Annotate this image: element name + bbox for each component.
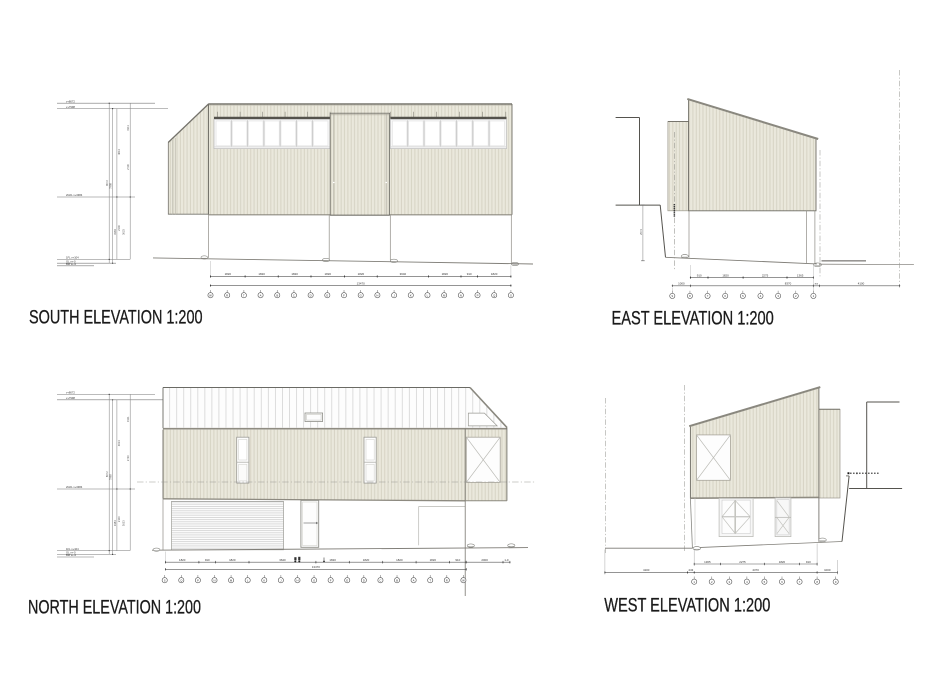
svg-text:WEST ELEVATION 1:200: WEST ELEVATION 1:200 xyxy=(604,596,770,617)
svg-text:1911: 1911 xyxy=(126,125,130,131)
svg-text:2GFL v+3384: 2GFL v+3384 xyxy=(66,193,83,197)
svg-text:3384: 3384 xyxy=(113,520,117,526)
svg-text:R: R xyxy=(446,578,448,582)
svg-text:W: W xyxy=(209,293,212,297)
svg-text:1FL v+104: 1FL v+104 xyxy=(66,547,79,551)
svg-text:3023: 3023 xyxy=(121,229,125,235)
svg-text:1-0: 1-0 xyxy=(504,558,509,562)
svg-text:H: H xyxy=(296,578,298,582)
svg-text:3640: 3640 xyxy=(279,558,286,562)
svg-text:1911: 1911 xyxy=(126,416,130,422)
svg-text:3640: 3640 xyxy=(400,272,407,276)
svg-text:13470: 13470 xyxy=(312,565,320,569)
svg-text:BM v+-0: BM v+-0 xyxy=(66,553,77,557)
svg-text:E: E xyxy=(346,578,348,582)
svg-text:4100: 4100 xyxy=(643,568,650,572)
svg-text:1820: 1820 xyxy=(363,558,370,562)
svg-text:2000: 2000 xyxy=(481,558,488,562)
svg-text:2730: 2730 xyxy=(126,455,130,461)
svg-text:2730: 2730 xyxy=(126,164,130,170)
svg-text:2574: 2574 xyxy=(639,229,643,235)
svg-text:13470: 13470 xyxy=(357,281,365,285)
svg-text:C: C xyxy=(293,293,295,297)
svg-text:8370: 8370 xyxy=(785,282,792,286)
svg-text:1820: 1820 xyxy=(258,272,265,276)
svg-text:910: 910 xyxy=(697,273,702,277)
svg-text:4614: 4614 xyxy=(117,149,121,155)
svg-text:910: 910 xyxy=(455,558,460,562)
svg-text:1820: 1820 xyxy=(325,272,332,276)
svg-text:T: T xyxy=(243,293,245,297)
svg-text:P: P xyxy=(197,578,199,582)
svg-text:1820: 1820 xyxy=(430,558,437,562)
svg-text:K: K xyxy=(410,293,412,297)
svg-text:1FL v+104: 1FL v+104 xyxy=(66,256,79,260)
svg-text:A: A xyxy=(260,293,262,297)
svg-text:2100: 2100 xyxy=(117,225,121,231)
svg-text:G: G xyxy=(360,293,362,297)
svg-text:910: 910 xyxy=(806,560,811,564)
svg-text:B: B xyxy=(276,293,278,297)
svg-text:2275: 2275 xyxy=(762,273,769,277)
svg-text:1820: 1820 xyxy=(291,272,298,276)
svg-text:1820: 1820 xyxy=(491,272,498,276)
svg-text:R: R xyxy=(226,293,228,297)
svg-text:443: 443 xyxy=(688,568,693,572)
svg-text:G: G xyxy=(313,578,315,582)
svg-text:N: N xyxy=(213,578,215,582)
svg-text:W: W xyxy=(462,578,465,582)
svg-text:P: P xyxy=(477,293,479,297)
svg-text:F: F xyxy=(330,578,332,582)
svg-text:H: H xyxy=(376,293,378,297)
svg-text:910: 910 xyxy=(467,272,472,276)
svg-text:910: 910 xyxy=(205,558,210,562)
svg-text:1820: 1820 xyxy=(442,272,449,276)
svg-text:T: T xyxy=(429,578,431,582)
svg-text:1820: 1820 xyxy=(358,272,365,276)
svg-text:S: S xyxy=(510,293,512,297)
svg-text:EAST ELEVATION 1:200: EAST ELEVATION 1:200 xyxy=(612,308,774,329)
svg-text:A: A xyxy=(413,578,415,582)
svg-text:N: N xyxy=(460,293,462,297)
svg-text:1820: 1820 xyxy=(396,558,403,562)
svg-text:2100: 2100 xyxy=(117,516,121,522)
svg-text:3384: 3384 xyxy=(113,229,117,235)
svg-text:B: B xyxy=(396,578,398,582)
svg-text:K: K xyxy=(263,578,265,582)
svg-text:8072: 8072 xyxy=(105,180,109,186)
svg-text:E: E xyxy=(326,293,328,297)
svg-text:7998: 7998 xyxy=(109,474,113,480)
svg-text:1365: 1365 xyxy=(797,273,804,277)
svg-text:SOUTH ELEVATION 1:200: SOUTH ELEVATION 1:200 xyxy=(29,307,203,328)
svg-text:BM v+-0: BM v+-0 xyxy=(66,262,77,266)
svg-text:v+8072: v+8072 xyxy=(66,391,75,395)
svg-text:S: S xyxy=(164,578,166,582)
svg-text:v+8072: v+8072 xyxy=(66,99,75,103)
svg-text:4614: 4614 xyxy=(117,440,121,446)
svg-text:1365: 1365 xyxy=(704,560,711,564)
svg-text:1820: 1820 xyxy=(329,558,336,562)
svg-text:NORTH ELEVATION 1:200: NORTH ELEVATION 1:200 xyxy=(28,597,201,618)
svg-text:1820: 1820 xyxy=(229,558,236,562)
svg-text:C: C xyxy=(379,578,381,582)
svg-text:2275: 2275 xyxy=(739,560,746,564)
svg-text:1000: 1000 xyxy=(824,568,831,572)
svg-text:1820: 1820 xyxy=(779,560,786,564)
svg-text:v+7998: v+7998 xyxy=(66,396,75,400)
svg-text:7998: 7998 xyxy=(109,183,113,189)
svg-text:4370: 4370 xyxy=(752,568,759,572)
svg-text:1820: 1820 xyxy=(722,273,729,277)
svg-text:4100: 4100 xyxy=(858,282,865,286)
svg-text:D: D xyxy=(363,578,365,582)
svg-text:2GFL v+3384: 2GFL v+3384 xyxy=(66,485,83,489)
svg-text:1820: 1820 xyxy=(225,272,232,276)
svg-text:1000: 1000 xyxy=(678,282,685,286)
svg-text:v+7998: v+7998 xyxy=(66,105,75,109)
svg-text:3023: 3023 xyxy=(121,520,125,526)
svg-text:8072: 8072 xyxy=(105,471,109,477)
svg-text:F: F xyxy=(343,293,345,297)
svg-text:1820: 1820 xyxy=(179,558,186,562)
svg-text:D: D xyxy=(310,293,312,297)
